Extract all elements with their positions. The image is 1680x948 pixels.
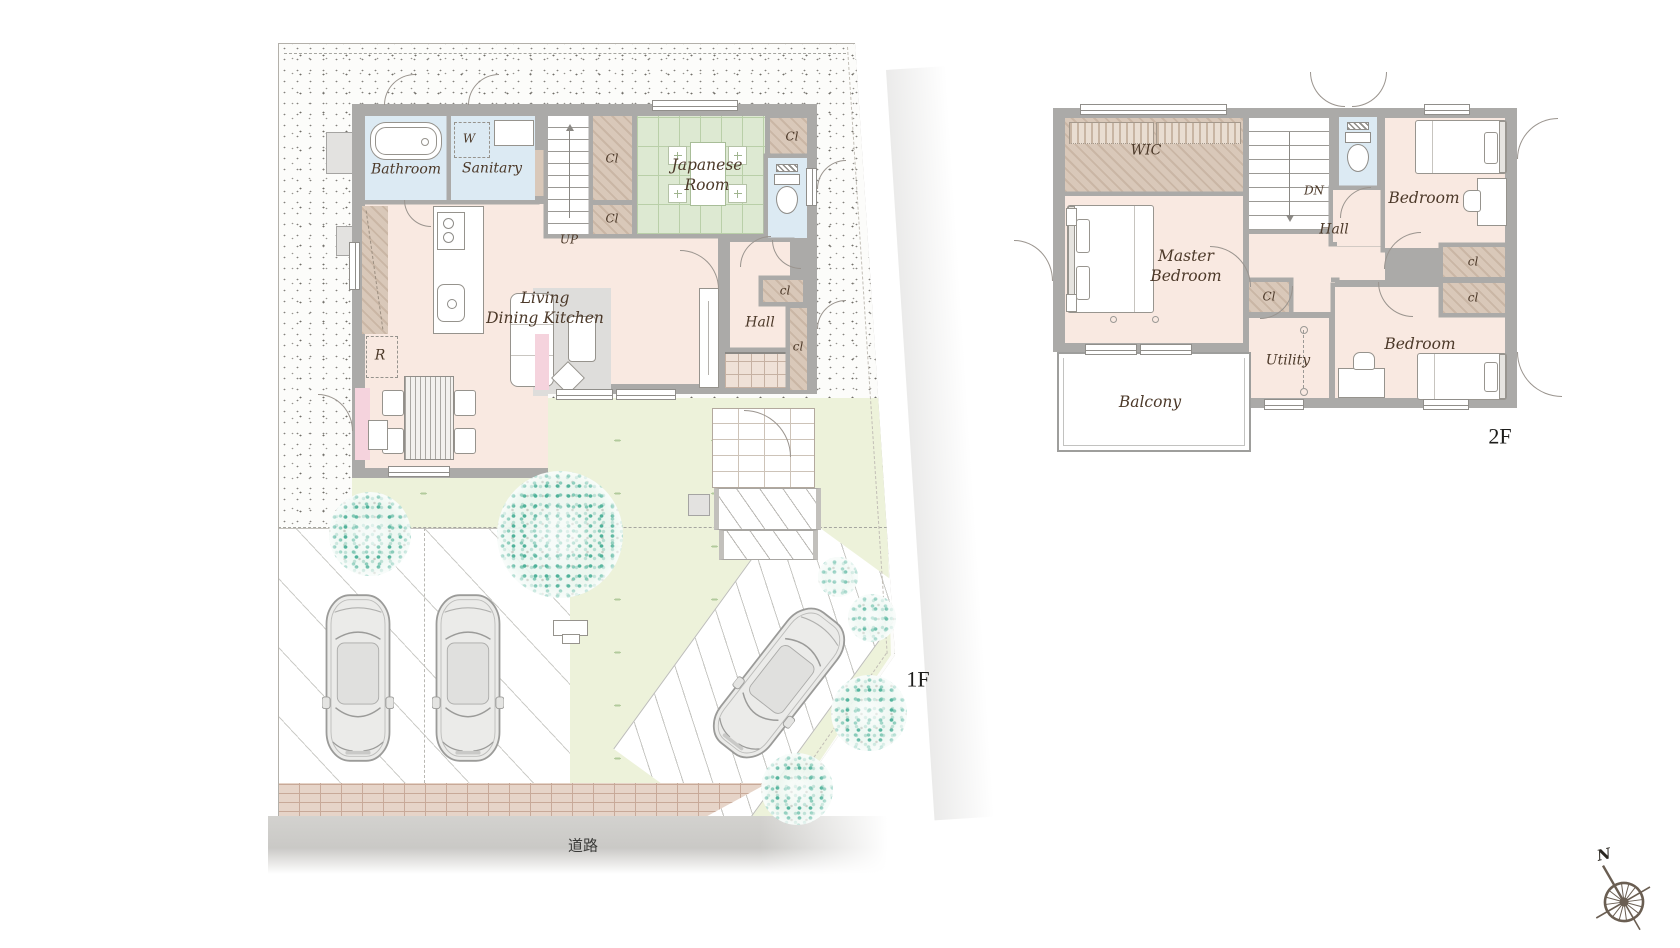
downlight xyxy=(1152,316,1159,323)
stove xyxy=(437,212,465,250)
master-bedroom-label: MasterBedroom xyxy=(1150,246,1221,286)
window xyxy=(1080,104,1227,115)
window xyxy=(1424,104,1470,115)
entrance-steps xyxy=(719,530,818,560)
desk-chair xyxy=(1463,190,1481,212)
window xyxy=(1264,399,1304,410)
wic-hanger-rod xyxy=(1156,122,1241,144)
stairs-down xyxy=(1249,118,1329,230)
closet-label: Cl xyxy=(605,210,618,229)
door-arc xyxy=(1517,118,1558,159)
closet-label: Cl xyxy=(605,150,618,169)
floor1-title: 1F xyxy=(906,670,929,689)
tv-board xyxy=(699,288,719,388)
downlight xyxy=(1110,316,1117,323)
kitchen-sink xyxy=(437,284,465,322)
door-arc xyxy=(1310,72,1345,107)
lot-boundary-top-dashed xyxy=(284,53,846,54)
ac-unit xyxy=(688,494,710,516)
master-bed xyxy=(1067,205,1154,313)
hall-1f-label: Hall xyxy=(745,314,775,333)
fridge-label: R xyxy=(375,347,386,366)
window xyxy=(1085,344,1137,355)
window xyxy=(1140,344,1192,355)
shrub xyxy=(831,675,907,751)
equipment-box xyxy=(326,132,354,174)
parking-stall-divider xyxy=(424,528,425,783)
dining-chair xyxy=(454,428,476,454)
bathroom-label: Bathroom xyxy=(371,161,441,180)
toilet-shelf xyxy=(776,164,798,172)
bedroom-label: Bedroom xyxy=(1388,188,1459,208)
balcony-label: Balcony xyxy=(1119,392,1181,412)
pantry-dash xyxy=(366,211,384,330)
bathtub xyxy=(370,122,442,160)
desk-chair xyxy=(1353,352,1375,370)
window xyxy=(349,242,360,290)
bench xyxy=(368,420,388,450)
door-arc xyxy=(740,236,771,267)
stairs-arrow-icon xyxy=(569,128,570,218)
dining-table xyxy=(404,376,454,460)
sanitary-sink xyxy=(494,120,534,146)
window xyxy=(616,389,676,400)
window xyxy=(652,100,738,111)
washer-label: W xyxy=(463,130,475,149)
stairs-arrow-icon xyxy=(1289,132,1290,218)
closet-label: cl xyxy=(793,338,804,357)
bedroom-label: Bedroom xyxy=(1384,334,1455,354)
toilet-fixture xyxy=(1343,122,1373,172)
window xyxy=(388,466,450,477)
closet-label: cl xyxy=(1468,289,1479,308)
tree xyxy=(329,492,411,576)
japanese-room-label: JapaneseRoom xyxy=(672,155,743,195)
ldk-label: LivingDining Kitchen xyxy=(486,288,604,328)
pantry-shelf xyxy=(362,206,388,334)
dining-chair xyxy=(454,390,476,416)
closet-label: cl xyxy=(1468,253,1479,272)
tree xyxy=(497,471,623,598)
shrub xyxy=(761,753,833,825)
stairs-up-label: UP xyxy=(560,231,578,250)
accent-wall-pink xyxy=(535,334,549,390)
bed xyxy=(1415,120,1507,174)
window xyxy=(1423,399,1469,410)
garden-bench-base xyxy=(562,634,580,644)
bed xyxy=(1417,353,1507,400)
stairs-up xyxy=(548,116,590,234)
sanitary-label: Sanitary xyxy=(462,160,522,179)
compass-north-label: N xyxy=(1595,844,1612,865)
window xyxy=(556,389,613,400)
wall-light xyxy=(1066,294,1077,312)
car xyxy=(322,578,394,778)
floorplan-canvas: Bathroom W Sanitary UP Cl Cl JapaneseRoo… xyxy=(0,0,1680,948)
wall-light xyxy=(1066,208,1077,226)
brick-paving-strip xyxy=(278,783,770,820)
door-arc xyxy=(1014,240,1053,281)
lot-boundary-top xyxy=(278,43,855,44)
door-arc xyxy=(1517,352,1562,397)
door-arc xyxy=(1352,72,1387,107)
car xyxy=(432,578,504,778)
hall-2f-label: Hall xyxy=(1319,221,1349,240)
entrance-steps xyxy=(714,488,821,530)
wic-label: WIC xyxy=(1131,142,1162,161)
hall-patch xyxy=(1293,276,1331,288)
road-label: 道路 xyxy=(568,837,598,856)
lot-boundary-left xyxy=(278,43,279,820)
desk xyxy=(1477,178,1507,226)
closet-label: Cl xyxy=(1262,288,1275,307)
window xyxy=(806,168,817,206)
pocket-door xyxy=(535,150,547,196)
toilet-fixture xyxy=(772,164,802,214)
desk xyxy=(1338,368,1385,398)
dining-chair xyxy=(382,390,404,416)
genkan-entry-tiles xyxy=(725,352,790,388)
closet-label: Cl xyxy=(785,128,798,147)
closet-label: cl xyxy=(780,282,791,301)
floor2-title: 2F xyxy=(1488,427,1511,446)
utility-label: Utility xyxy=(1266,352,1310,371)
stairs-down-label: DN xyxy=(1304,182,1324,201)
compass-icon xyxy=(1580,858,1668,946)
